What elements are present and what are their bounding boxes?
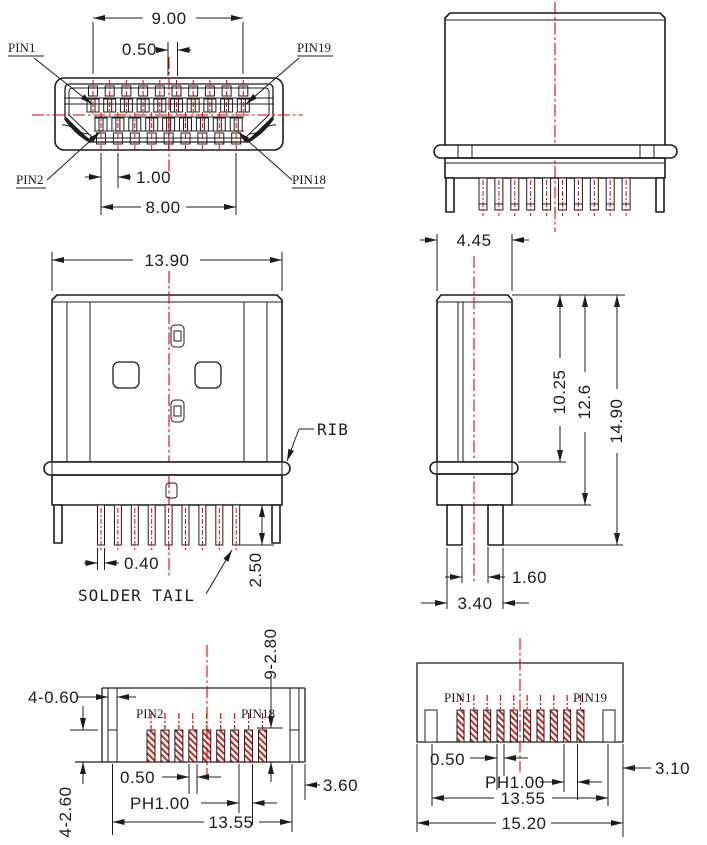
base-insulator	[52, 475, 282, 505]
rib-collar	[430, 462, 518, 474]
solder-pad	[470, 710, 477, 742]
solder-pad	[457, 710, 464, 742]
dim-tail-width-text: 0.40	[124, 554, 159, 573]
rib-collar	[434, 145, 677, 158]
dim-tail-length: 2.50	[238, 505, 274, 588]
dim-height-total: 14.90	[607, 295, 626, 545]
dim-side-text: 3.60	[323, 776, 358, 795]
dim-side: 3.60	[305, 764, 358, 800]
left-leg	[54, 505, 62, 543]
pin19-callout: PIN19	[246, 40, 333, 104]
pin1-label: PIN1	[8, 40, 35, 55]
dim-span-text: 13.55	[208, 813, 253, 832]
dim-slots-width-text: 4-0.60	[28, 688, 79, 707]
dim-slots-length-text: 4-2.60	[56, 786, 75, 837]
dim-height-to-base: 12.6	[575, 295, 594, 505]
shell-wall-lines	[67, 302, 267, 462]
right-leg	[488, 505, 503, 545]
right-leg-hole	[603, 710, 615, 742]
base-center-notch	[166, 483, 177, 498]
left-leg	[447, 505, 462, 545]
solder-pad	[524, 710, 531, 742]
solder-pad	[231, 730, 239, 762]
dim-offset-text: 0.50	[122, 40, 157, 59]
dim-width: 13.90	[52, 251, 282, 291]
solder-pad	[497, 710, 504, 742]
solder-pad	[259, 730, 267, 762]
front-top-contacts	[87, 80, 249, 114]
right-leg	[656, 178, 664, 212]
footprint-bottom-view: PIN2 PIN18 4-0.60 4-2.60 9-2.80 0.50 PH1…	[28, 628, 358, 837]
solder-pad	[217, 730, 225, 762]
left-leg-hole	[425, 710, 437, 742]
dim-span-top-text: 9.00	[151, 9, 186, 28]
dim-depth-text: 4.45	[456, 231, 491, 250]
solder-pad	[245, 730, 253, 762]
dim-slots-width: 4-0.60	[28, 688, 136, 707]
dim-side: 3.10	[623, 759, 690, 778]
dim-span-text: 13.55	[500, 789, 545, 808]
front-view: 9.00 0.50 PIN1 PIN19	[8, 9, 333, 217]
left-latch-hole	[113, 362, 139, 388]
solder-pad	[577, 710, 584, 742]
solder-pad	[564, 710, 571, 742]
dim-h-rib-text: 10.25	[550, 369, 569, 414]
pin2-label: PIN2	[136, 706, 163, 721]
dim-span-bottom-text: 8.00	[145, 198, 180, 217]
body-outline	[52, 295, 282, 462]
dim-pad-gap: 0.50	[120, 764, 221, 794]
footprint-top-view: PIN1 PIN19 0.50 PH1.00 13.55 15.20	[417, 638, 690, 837]
solder-pad	[189, 730, 197, 762]
dim-leg-span-text: 3.40	[457, 594, 492, 613]
solder-tails	[98, 505, 240, 551]
solder-pad	[484, 710, 491, 742]
dim-pad-gap-text: 0.50	[430, 750, 465, 769]
solder-pad	[147, 730, 155, 762]
solder-pad	[537, 710, 544, 742]
dim-leg-gap: 1.60	[445, 547, 547, 587]
dim-leg-gap-text: 1.60	[512, 568, 547, 587]
pin1-label: PIN1	[444, 690, 471, 705]
rib-label: RIB	[317, 420, 349, 439]
dim-width-text: 13.90	[144, 251, 189, 270]
dim-width-text: 15.20	[501, 814, 546, 833]
pin18-label: PIN18	[292, 172, 326, 187]
solder-pad	[175, 730, 183, 762]
top-view: 13.90 0.40 2.	[44, 251, 349, 605]
pin18-label: PIN18	[241, 706, 275, 721]
left-leg	[446, 178, 454, 212]
pin19-label: PIN19	[573, 690, 607, 705]
bottom-latch-tab	[171, 400, 184, 422]
solder-tail-label: SOLDER TAIL	[78, 586, 195, 605]
solder-pad	[510, 710, 517, 742]
connector-engineering-drawing: 9.00 0.50 PIN1 PIN19	[0, 0, 707, 845]
rear-view	[434, 2, 677, 232]
dim-tail-length-text: 2.50	[246, 552, 265, 587]
dim-height-to-rib: 10.25	[550, 295, 569, 462]
pin1-callout: PIN1	[8, 40, 92, 104]
solder-pad	[161, 730, 169, 762]
rib-callout: RIB	[287, 420, 349, 461]
dim-pads-text: 9-2.80	[261, 628, 280, 679]
dim-h-total-text: 14.90	[607, 398, 626, 443]
dim-offset: 0.50	[122, 40, 191, 76]
top-latch-tab	[171, 325, 184, 347]
pin19-label: PIN19	[297, 40, 331, 55]
side-view: 4.45 10.25 12.6 14.90 1.60	[420, 231, 626, 613]
dim-pad-pitch-text: PH1.00	[130, 794, 190, 813]
dim-pitch-text: 1.00	[136, 168, 171, 187]
dim-pad-gap-text: 0.50	[120, 768, 155, 787]
solder-pad	[550, 710, 557, 742]
dim-tail-width: 0.40	[84, 548, 159, 573]
right-latch-hole	[195, 362, 221, 388]
dim-side-text: 3.10	[655, 759, 690, 778]
rib-collar	[44, 462, 290, 475]
right-leg	[272, 505, 280, 543]
dim-slots-length: 4-2.60	[56, 706, 98, 838]
dim-h-base-text: 12.6	[575, 384, 594, 419]
pin2-label: PIN2	[16, 172, 43, 187]
drawing-sheet: 9.00 0.50 PIN1 PIN19	[0, 0, 707, 845]
